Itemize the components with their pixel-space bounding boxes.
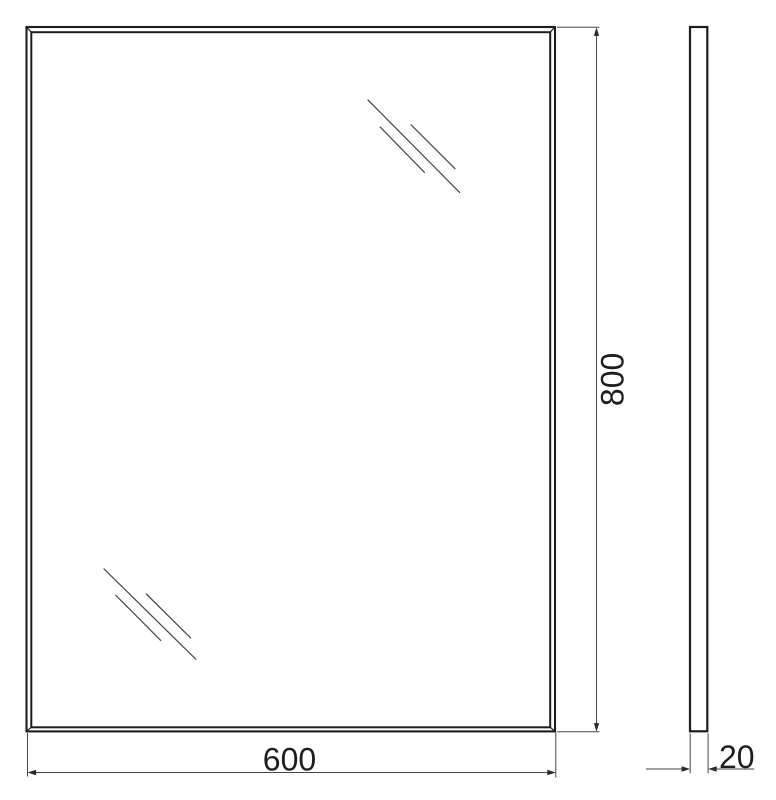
- svg-text:20: 20: [719, 739, 755, 775]
- svg-text:600: 600: [263, 742, 316, 778]
- svg-text:800: 800: [594, 353, 630, 406]
